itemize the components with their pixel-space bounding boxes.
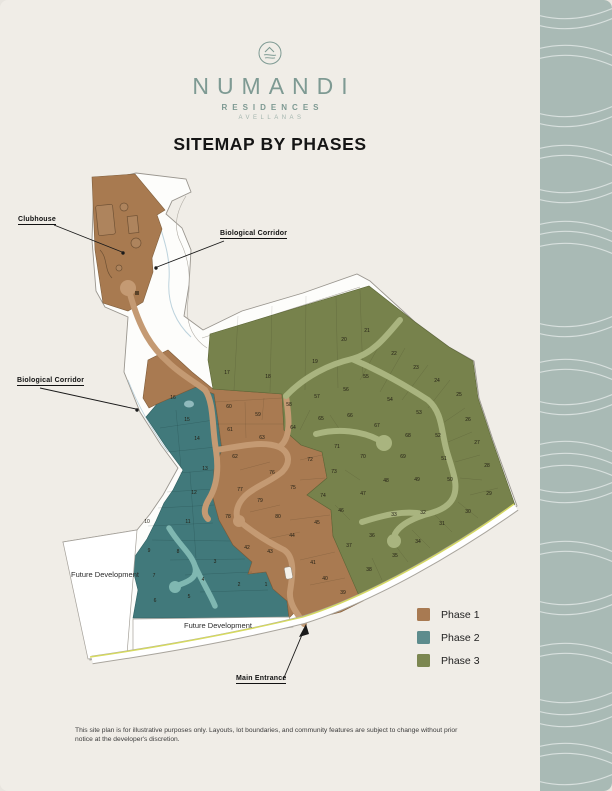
lot-number: 77 <box>237 487 243 493</box>
lot-number: 69 <box>400 454 406 460</box>
lot-number: 34 <box>415 539 421 545</box>
future-development-label-bottom: Future Development <box>168 621 268 630</box>
lot-number: 59 <box>255 412 261 418</box>
lot-number: 17 <box>224 370 230 376</box>
legend-label: Phase 3 <box>441 655 480 667</box>
lot-number: 22 <box>391 351 397 357</box>
lot-number: 12 <box>191 490 197 496</box>
sitemap-graphic: 39404142434445596061626372757677787980 1… <box>0 0 612 791</box>
lot-number: 61 <box>227 427 233 433</box>
lot-number: 7 <box>153 573 156 579</box>
future-development-label-left: Future Development <box>68 570 142 579</box>
legend-item: Phase 1 <box>417 603 480 626</box>
lot-number: 8 <box>177 549 180 555</box>
legend-label: Phase 1 <box>441 609 480 621</box>
legend-swatch-phase2 <box>417 631 430 644</box>
clubhouse-label: Clubhouse <box>18 216 56 225</box>
lot-number: 78 <box>225 514 231 520</box>
culdesac-bulb <box>376 435 392 451</box>
lot-number: 39 <box>340 590 346 596</box>
legend-item: Phase 3 <box>417 649 480 672</box>
lot-number: 45 <box>314 520 320 526</box>
lot-number: 10 <box>144 519 150 525</box>
lot-number: 24 <box>434 378 440 384</box>
lot-number: 2 <box>238 582 241 588</box>
lot-number: 46 <box>338 508 344 514</box>
lot-number: 19 <box>312 359 318 365</box>
lot-number: 20 <box>341 337 347 343</box>
lot-number: 74 <box>320 493 326 499</box>
biological-corridor-label-top: Biological Corridor <box>220 230 287 239</box>
lot-number: 1 <box>265 582 268 588</box>
lot-number: 56 <box>343 387 349 393</box>
lot-number: 49 <box>414 477 420 483</box>
biological-corridor-label-left: Biological Corridor <box>17 377 84 386</box>
lot-number: 9 <box>148 548 151 554</box>
lot-number: 14 <box>194 436 200 442</box>
lot-number: 11 <box>185 519 190 525</box>
disclaimer-text: This site plan is for illustrative purpo… <box>75 726 477 745</box>
lot-number: 28 <box>484 463 490 469</box>
lot-number: 57 <box>314 394 320 400</box>
lot-number: 13 <box>202 466 208 472</box>
lot-number: 73 <box>331 469 337 475</box>
lot-number: 18 <box>265 374 271 380</box>
lot-number: 27 <box>474 440 480 446</box>
culdesac-bulb <box>169 581 181 593</box>
lot-number: 72 <box>307 457 313 463</box>
lot-number: 51 <box>441 456 447 462</box>
lot-number: 52 <box>435 433 441 439</box>
lot-number: 60 <box>226 404 232 410</box>
lot-number: 48 <box>383 478 389 484</box>
lot-number: 41 <box>310 560 316 566</box>
clubhouse-marker <box>135 291 139 295</box>
lot-number: 58 <box>286 402 292 408</box>
main-entrance-label: Main Entrance <box>236 675 286 684</box>
lot-number: 62 <box>232 454 238 460</box>
lot-number: 75 <box>290 485 296 491</box>
lot-number: 47 <box>360 491 366 497</box>
lot-number: 4 <box>202 577 205 583</box>
lot-number: 68 <box>405 433 411 439</box>
lot-number: 40 <box>322 576 328 582</box>
phase-legend: Phase 1Phase 2Phase 3 <box>417 603 480 672</box>
lot-number: 44 <box>289 533 295 539</box>
lot-number: 33 <box>391 512 397 518</box>
lot-number: 6 <box>154 598 157 604</box>
sitemap-page: NUMANDI RESIDENCES AVELLANAS SITEMAP BY … <box>0 0 612 791</box>
lot-number: 15 <box>184 417 190 423</box>
lot-number: 37 <box>346 543 352 549</box>
lot-number: 5 <box>188 594 191 600</box>
legend-item: Phase 2 <box>417 626 480 649</box>
lot-number: 67 <box>374 423 380 429</box>
future-dev-left-area <box>63 530 137 659</box>
pond <box>184 401 194 408</box>
lot-number: 53 <box>416 410 422 416</box>
lot-number: 31 <box>439 521 445 527</box>
lot-number: 21 <box>364 328 370 334</box>
lot-number: 70 <box>360 454 366 460</box>
legend-label: Phase 2 <box>441 632 480 644</box>
lot-number: 23 <box>413 365 419 371</box>
lot-number: 66 <box>347 413 353 419</box>
lot-number: 71 <box>334 444 340 450</box>
lot-number: 32 <box>420 510 426 516</box>
lot-number: 35 <box>392 553 398 559</box>
lot-number: 80 <box>275 514 281 520</box>
lot-number: 79 <box>257 498 263 504</box>
lot-number: 76 <box>269 470 275 476</box>
lot-number: 55 <box>363 374 369 380</box>
lot-number: 38 <box>366 567 372 573</box>
lot-number: 3 <box>214 559 217 565</box>
lot-number: 64 <box>290 425 296 431</box>
lot-number: 43 <box>267 549 273 555</box>
legend-swatch-phase3 <box>417 654 430 667</box>
legend-swatch-phase1 <box>417 608 430 621</box>
culdesac-bulb <box>233 515 245 527</box>
lot-number: 54 <box>387 397 393 403</box>
lot-number: 30 <box>465 509 471 515</box>
lot-number: 50 <box>447 477 453 483</box>
lot-number: 36 <box>369 533 375 539</box>
lot-number: 16 <box>170 395 176 401</box>
lot-number: 26 <box>465 417 471 423</box>
lot-number: 25 <box>456 392 462 398</box>
lot-number: 65 <box>318 416 324 422</box>
lot-number: 42 <box>244 545 250 551</box>
lot-number: 63 <box>259 435 265 441</box>
lot-number: 29 <box>486 491 492 497</box>
culdesac-bulb <box>387 534 401 548</box>
